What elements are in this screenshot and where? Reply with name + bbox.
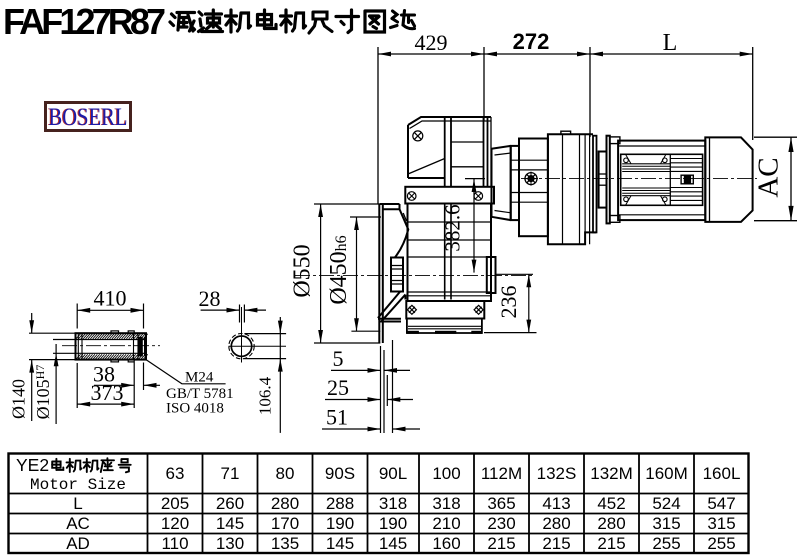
svg-text:145: 145 bbox=[379, 534, 407, 553]
svg-text:288: 288 bbox=[326, 494, 354, 513]
svg-text:160: 160 bbox=[432, 534, 460, 553]
svg-text:280: 280 bbox=[597, 514, 625, 533]
svg-text:410: 410 bbox=[94, 286, 127, 311]
svg-text:429: 429 bbox=[415, 30, 448, 55]
svg-text:YE2: YE2 bbox=[16, 455, 49, 475]
svg-text:BOSERL: BOSERL bbox=[49, 104, 128, 131]
svg-text:M24: M24 bbox=[185, 370, 214, 386]
svg-text:135: 135 bbox=[271, 534, 299, 553]
svg-text:280: 280 bbox=[542, 514, 570, 533]
svg-text:Ø550: Ø550 bbox=[290, 244, 316, 297]
svg-text:Motor Size: Motor Size bbox=[30, 476, 126, 494]
svg-text:318: 318 bbox=[432, 494, 460, 513]
svg-text:AC: AC bbox=[753, 157, 785, 197]
svg-text:255: 255 bbox=[652, 534, 680, 553]
svg-text:160M: 160M bbox=[645, 464, 688, 483]
svg-text:365: 365 bbox=[487, 494, 515, 513]
svg-text:90S: 90S bbox=[325, 464, 355, 483]
svg-text:L: L bbox=[73, 494, 82, 513]
svg-text:160L: 160L bbox=[703, 464, 741, 483]
svg-text:215: 215 bbox=[597, 534, 625, 553]
svg-text:132M: 132M bbox=[590, 464, 633, 483]
svg-text:ISO 4018: ISO 4018 bbox=[166, 401, 224, 417]
svg-text:90L: 90L bbox=[379, 464, 407, 483]
svg-text:25: 25 bbox=[327, 375, 349, 400]
svg-text:71: 71 bbox=[221, 464, 240, 483]
svg-text:280: 280 bbox=[271, 494, 299, 513]
svg-text:5: 5 bbox=[333, 346, 344, 371]
svg-text:80: 80 bbox=[276, 464, 295, 483]
svg-text:382.6: 382.6 bbox=[441, 204, 465, 251]
svg-text:112M: 112M bbox=[481, 464, 522, 483]
svg-text:130: 130 bbox=[216, 534, 244, 553]
svg-text:51: 51 bbox=[326, 405, 348, 430]
svg-text:AD: AD bbox=[66, 534, 90, 553]
svg-text:230: 230 bbox=[487, 514, 515, 533]
svg-text:373: 373 bbox=[91, 380, 124, 405]
svg-text:100: 100 bbox=[432, 464, 460, 483]
svg-text:AC: AC bbox=[66, 514, 90, 533]
svg-text:315: 315 bbox=[652, 514, 680, 533]
svg-text:FAF127R87: FAF127R87 bbox=[3, 1, 166, 42]
svg-text:190: 190 bbox=[379, 514, 407, 533]
svg-text:L: L bbox=[663, 30, 678, 56]
svg-text:215: 215 bbox=[487, 534, 515, 553]
svg-text:106.4: 106.4 bbox=[256, 376, 275, 415]
svg-text:110: 110 bbox=[161, 534, 188, 553]
svg-text:28: 28 bbox=[199, 286, 221, 311]
svg-text:170: 170 bbox=[271, 514, 299, 533]
svg-text:145: 145 bbox=[216, 514, 244, 533]
svg-text:205: 205 bbox=[161, 494, 189, 513]
svg-text:215: 215 bbox=[542, 534, 570, 553]
svg-text:Ø140: Ø140 bbox=[9, 379, 29, 419]
svg-text:190: 190 bbox=[326, 514, 354, 533]
svg-text:255: 255 bbox=[707, 534, 735, 553]
svg-text:210: 210 bbox=[432, 514, 460, 533]
svg-text:63: 63 bbox=[166, 464, 185, 483]
svg-text:132S: 132S bbox=[537, 464, 577, 483]
svg-text:452: 452 bbox=[597, 494, 625, 513]
svg-text:236: 236 bbox=[496, 286, 521, 319]
svg-text:260: 260 bbox=[216, 494, 244, 513]
svg-text:547: 547 bbox=[707, 494, 735, 513]
svg-text:413: 413 bbox=[542, 494, 570, 513]
svg-text:315: 315 bbox=[707, 514, 735, 533]
svg-text:120: 120 bbox=[161, 514, 189, 533]
svg-text:272: 272 bbox=[513, 29, 550, 54]
svg-text:524: 524 bbox=[652, 494, 680, 513]
svg-text:318: 318 bbox=[379, 494, 407, 513]
svg-text:145: 145 bbox=[326, 534, 354, 553]
